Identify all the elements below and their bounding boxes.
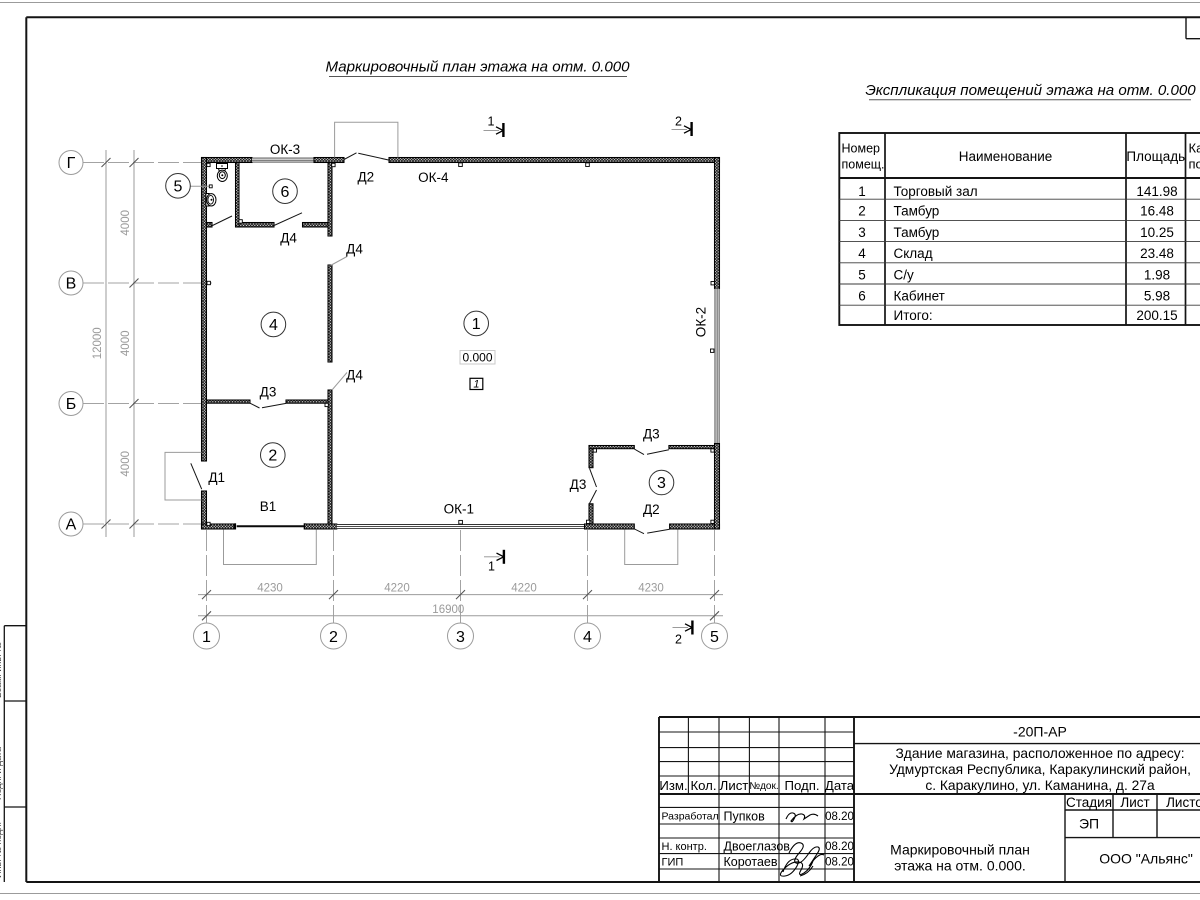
svg-text:4000: 4000 (120, 331, 132, 357)
svg-text:В1: В1 (260, 499, 277, 514)
svg-text:3: 3 (858, 225, 866, 240)
svg-text:Разработал: Разработал (662, 811, 719, 823)
svg-text:200.15: 200.15 (1136, 308, 1177, 323)
svg-text:Пупков: Пупков (724, 809, 766, 823)
svg-text:08.20: 08.20 (825, 857, 854, 869)
svg-text:08.20: 08.20 (825, 811, 854, 823)
svg-text:Стадия: Стадия (1066, 795, 1112, 810)
svg-text:1: 1 (858, 184, 866, 199)
svg-text:Взам. инв. №: Взам. инв. № (0, 642, 3, 698)
svg-text:Удмуртская Республика, Каракул: Удмуртская Республика, Каракулинский рай… (889, 762, 1191, 777)
svg-text:4230: 4230 (257, 583, 283, 595)
svg-text:5: 5 (174, 178, 183, 195)
svg-text:ОК-1: ОК-1 (444, 502, 474, 517)
svg-text:4: 4 (269, 317, 278, 334)
svg-text:помещ.: помещ. (842, 158, 885, 172)
svg-text:2: 2 (268, 448, 277, 465)
svg-text:Кол.: Кол. (690, 778, 716, 793)
svg-text:Маркировочный план этажа на от: Маркировочный план этажа на отм. 0.000 (325, 59, 630, 76)
svg-text:ОК-4: ОК-4 (418, 170, 449, 185)
svg-text:141.98: 141.98 (1136, 184, 1177, 199)
svg-text:Д3: Д3 (570, 477, 587, 492)
svg-text:5: 5 (858, 267, 866, 282)
svg-text:Н. контр.: Н. контр. (662, 841, 707, 853)
svg-text:Д4: Д4 (346, 368, 363, 383)
svg-text:Д2: Д2 (643, 502, 660, 517)
svg-text:2: 2 (675, 115, 682, 129)
svg-text:4000: 4000 (120, 451, 132, 477)
svg-text:Дата: Дата (825, 778, 855, 793)
svg-text:помещения: помещения (1189, 157, 1200, 172)
svg-text:10.25: 10.25 (1140, 225, 1174, 240)
svg-text:Лист: Лист (1120, 795, 1149, 810)
svg-text:4000: 4000 (120, 210, 132, 236)
svg-text:Тамбур: Тамбур (894, 204, 940, 219)
svg-text:4: 4 (858, 246, 866, 261)
svg-text:5.98: 5.98 (1144, 289, 1170, 304)
svg-text:4: 4 (583, 629, 592, 646)
svg-text:Кабинет: Кабинет (894, 289, 945, 304)
svg-text:1: 1 (202, 629, 211, 646)
svg-text:Д2: Д2 (357, 169, 374, 184)
svg-text:Площадь: Площадь (1126, 149, 1185, 164)
svg-text:1: 1 (488, 560, 495, 574)
svg-text:Д4: Д4 (280, 230, 297, 245)
svg-text:ООО "Альянс": ООО "Альянс" (1099, 850, 1193, 866)
svg-text:-20П-АР: -20П-АР (1013, 723, 1067, 739)
svg-text:2: 2 (329, 629, 338, 646)
svg-text:1.98: 1.98 (1144, 267, 1170, 282)
svg-text:Д1: Д1 (208, 470, 225, 485)
svg-text:4220: 4220 (384, 583, 410, 595)
svg-text:3: 3 (657, 475, 666, 492)
svg-text:Д3: Д3 (643, 426, 660, 441)
svg-text:6: 6 (858, 289, 866, 304)
svg-text:0.000: 0.000 (462, 350, 492, 364)
svg-text:ОК-3: ОК-3 (270, 142, 300, 157)
svg-text:№док.: №док. (749, 781, 778, 792)
svg-text:Экспликация помещений этажа на: Экспликация помещений этажа на отм. 0.00… (865, 82, 1196, 99)
svg-text:Наименование: Наименование (959, 149, 1053, 164)
svg-text:этажа на отм. 0.000.: этажа на отм. 0.000. (894, 858, 1026, 874)
svg-text:Подп. и дата: Подп. и дата (0, 747, 3, 800)
svg-text:1: 1 (488, 115, 495, 129)
svg-text:Коротаев: Коротаев (724, 855, 778, 869)
svg-text:с. Каракулино, ул. Каманина, д: с. Каракулино, ул. Каманина, д. 27а (925, 778, 1155, 793)
svg-text:Б: Б (66, 396, 77, 413)
svg-text:Здание магазина, расположенное: Здание магазина, расположенное по адресу… (895, 746, 1184, 761)
svg-text:ЭП: ЭП (1079, 816, 1099, 832)
svg-text:Подп.: Подп. (784, 778, 819, 793)
svg-text:4220: 4220 (511, 583, 537, 595)
svg-text:Д4: Д4 (346, 241, 363, 256)
svg-text:С/у: С/у (894, 267, 915, 282)
svg-text:Двоеглазов: Двоеглазов (724, 840, 791, 854)
svg-text:08.20: 08.20 (825, 841, 854, 853)
svg-text:Торговый зал: Торговый зал (894, 184, 978, 199)
svg-text:А: А (66, 517, 77, 534)
svg-text:1: 1 (472, 316, 481, 333)
svg-text:Изм.: Изм. (659, 778, 687, 793)
svg-text:Лист: Лист (720, 778, 749, 793)
svg-text:Итого:: Итого: (894, 308, 933, 323)
svg-text:Маркировочный план: Маркировочный план (890, 842, 1030, 858)
svg-text:23.48: 23.48 (1140, 246, 1174, 261)
svg-text:Листов: Листов (1166, 795, 1200, 810)
svg-text:3: 3 (456, 629, 465, 646)
svg-text:ОК-2: ОК-2 (693, 307, 708, 337)
svg-text:16.48: 16.48 (1140, 204, 1174, 219)
svg-text:6: 6 (281, 184, 290, 201)
svg-text:16900: 16900 (432, 604, 464, 616)
svg-text:Склад: Склад (894, 246, 933, 261)
svg-text:12000: 12000 (92, 327, 104, 359)
svg-text:5: 5 (710, 629, 719, 646)
svg-text:2: 2 (675, 633, 682, 647)
svg-text:В: В (66, 276, 77, 293)
svg-text:Номер: Номер (842, 142, 881, 156)
svg-text:ГИП: ГИП (662, 856, 684, 868)
svg-text:Категория: Категория (1189, 141, 1200, 156)
svg-text:Г: Г (67, 155, 76, 172)
svg-text:1: 1 (473, 379, 479, 391)
svg-text:Тамбур: Тамбур (894, 225, 940, 240)
svg-text:Инв. № подл.: Инв. № подл. (0, 822, 3, 878)
svg-text:Д3: Д3 (260, 384, 277, 399)
svg-text:2: 2 (858, 204, 866, 219)
svg-text:4230: 4230 (638, 583, 664, 595)
